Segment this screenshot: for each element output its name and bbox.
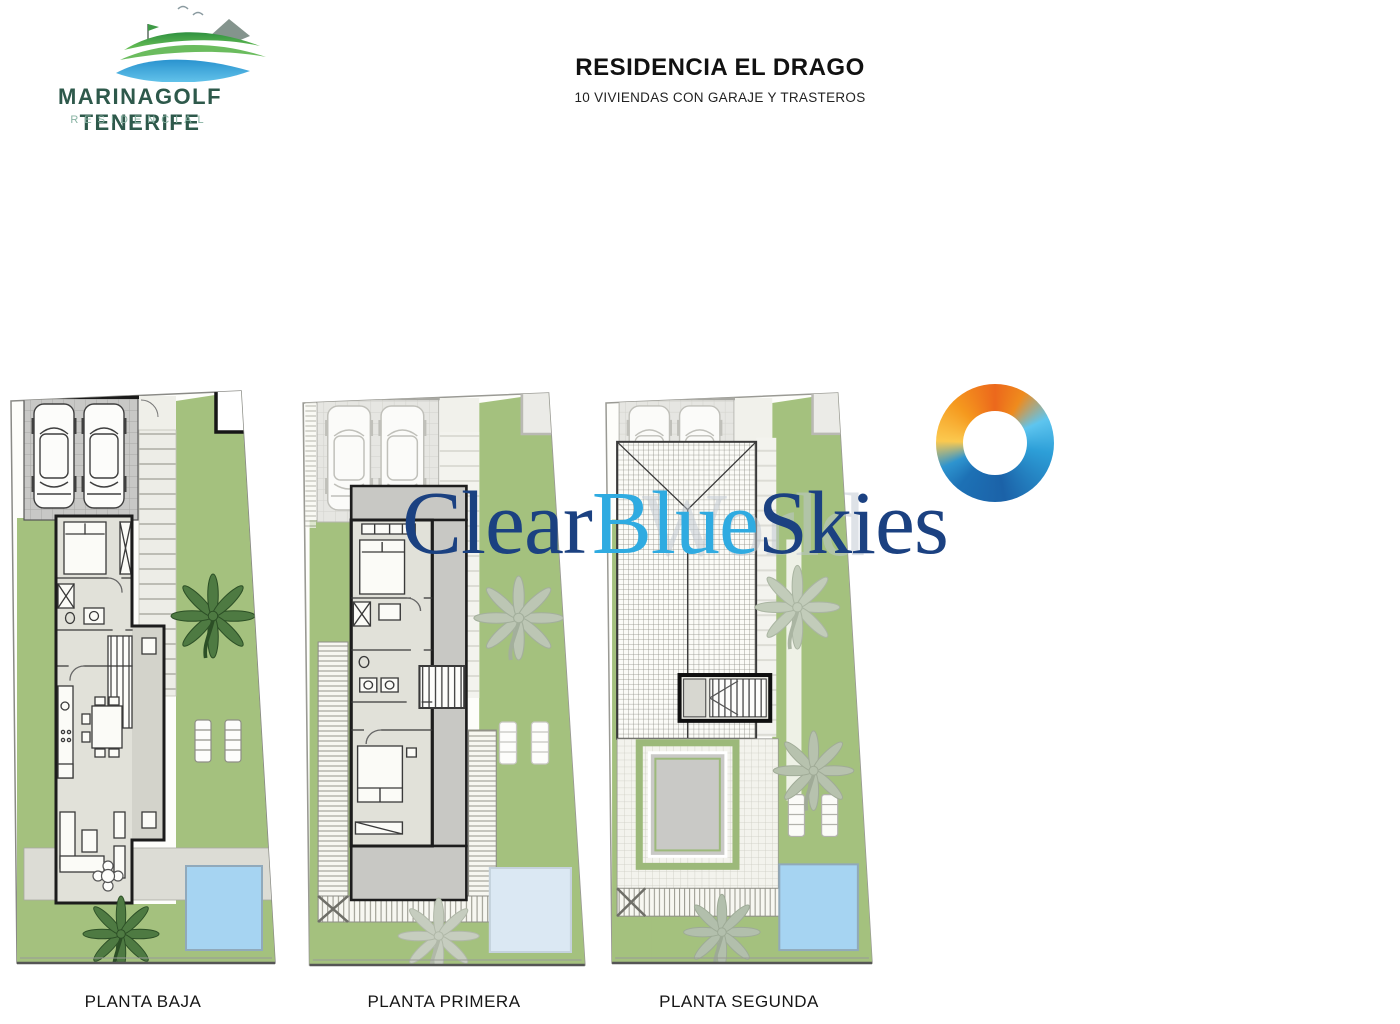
stair-bulkhead <box>680 675 771 721</box>
sun-lounger <box>195 720 211 762</box>
sun-lounger-ghost <box>822 795 838 837</box>
sun-lounger <box>225 720 241 762</box>
sun-lounger-ghost <box>788 795 804 837</box>
column <box>142 638 156 654</box>
plan-label-planta-segunda: PLANTA SEGUNDA <box>603 992 875 1012</box>
palm-tree-icon <box>684 894 761 968</box>
dining-table <box>92 706 122 748</box>
brand-tagline: RESIDENCIAL <box>10 114 270 126</box>
car-icon <box>33 404 75 508</box>
page-subtitle: 10 VIVIENDAS CON GARAJE Y TRASTEROS <box>520 90 920 105</box>
storage-room-ghost <box>813 391 849 434</box>
watermark-blue: Blue <box>592 474 758 573</box>
brand-name: MARINAGOLF TENERIFE <box>10 84 270 136</box>
plan-label-planta-baja: PLANTA BAJA <box>8 992 278 1012</box>
storage-room-ghost <box>522 391 560 434</box>
sink-cabinet <box>84 608 104 624</box>
sun-lounger-ghost <box>531 722 548 764</box>
watermark-clear: Clear <box>402 474 592 573</box>
palm-tree-icon <box>171 574 255 658</box>
car-icon <box>83 404 125 508</box>
palm-tree-icon <box>83 896 159 968</box>
blue-wave <box>116 60 250 82</box>
palm-tree-icon <box>755 565 840 649</box>
pool <box>779 864 858 950</box>
floor-plan-planta-baja <box>8 388 278 968</box>
palm-tree-icon <box>398 898 479 970</box>
palm-tree-icon <box>474 576 564 660</box>
palm-tree-icon <box>773 731 854 811</box>
armchair <box>114 812 125 838</box>
brochure-page: MARINAGOLF TENERIFE RESIDENCIAL RESIDENC… <box>0 0 1400 1024</box>
green-wave <box>120 45 266 60</box>
sofa <box>60 856 104 872</box>
bird-icon <box>178 7 188 10</box>
pool <box>186 866 262 950</box>
fridge <box>58 764 73 778</box>
plan-label-planta-primera: PLANTA PRIMERA <box>300 992 588 1012</box>
storage-room <box>216 389 252 432</box>
marinagolf-logo-icon <box>98 2 288 82</box>
swirl-logo-icon <box>936 384 1054 502</box>
sink-cabinet <box>381 678 398 692</box>
coffee-table <box>82 830 97 852</box>
column <box>142 812 156 828</box>
page-title: RESIDENCIA EL DRAGO <box>520 54 920 82</box>
sun-lounger-ghost <box>499 722 516 764</box>
nightstand <box>407 748 417 757</box>
stairs <box>710 679 766 717</box>
terrace-deck <box>649 753 726 857</box>
terrace-slab <box>351 846 466 900</box>
sink-cabinet <box>360 678 377 692</box>
bird-icon <box>193 13 203 16</box>
watermark-skies: Skies <box>758 474 948 573</box>
title-block: RESIDENCIA EL DRAGO 10 VIVIENDAS CON GAR… <box>520 54 920 105</box>
garage <box>24 396 138 520</box>
pool-ghost <box>490 868 571 952</box>
sink-cabinet <box>379 604 400 620</box>
clearblueskies-watermark: ClearBlueSkies <box>402 472 948 575</box>
